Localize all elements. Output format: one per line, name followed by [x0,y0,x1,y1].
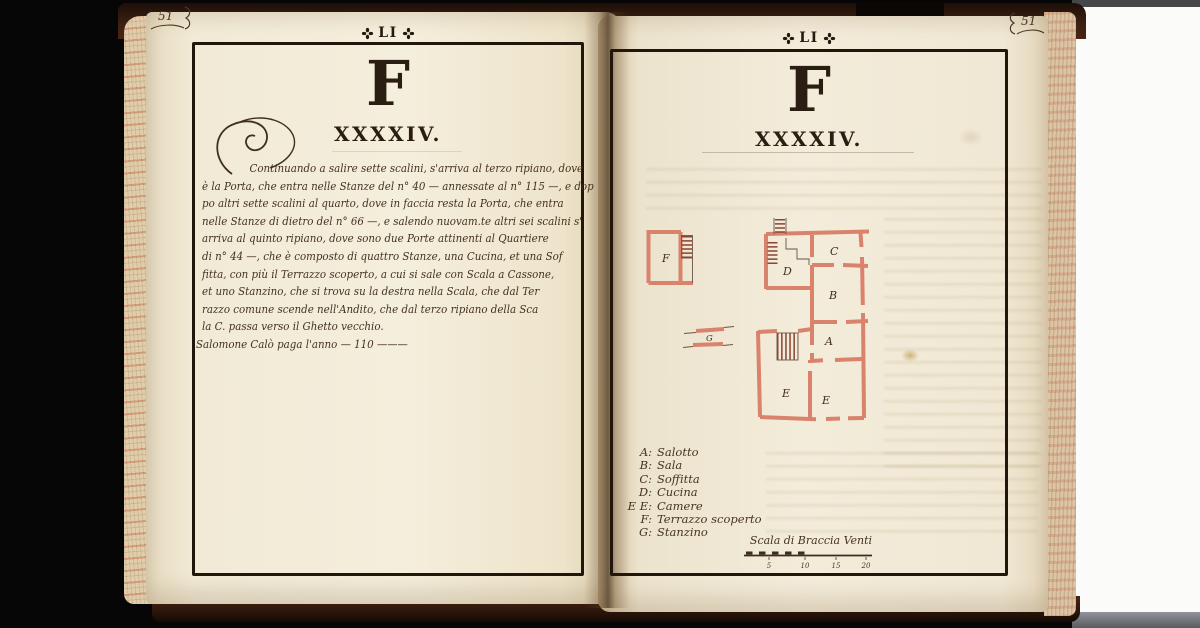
body-line: di n° 44 —, che è composto di quattro St… [202,248,567,266]
body-line: Continuando a salire sette scalini, s'ar… [202,160,567,178]
body-line: nelle Stanze di dietro del n° 66 —, e sa… [202,213,567,231]
legend-key: G: [626,526,652,539]
legend-key: B: [626,459,652,472]
running-head-text: LI [378,25,397,41]
folio-number-left: 51 [158,9,173,23]
fleuron-icon [824,33,835,44]
running-head-text: LI [799,30,818,46]
room-label-g: G [706,334,713,344]
body-line: è la Porta, che entra nelle Stanze del n… [202,178,567,196]
legend-key: A: [626,446,652,459]
legend-key: E E: [614,500,652,513]
body-line: arriva al quinto ripiano, dove sono due … [202,230,567,248]
legend-row: A:Salotto [626,446,856,459]
fleuron-icon [362,28,373,39]
scale-tick-15: 15 [832,562,841,570]
legend-name: Sala [657,459,682,472]
legend-key: F: [626,513,652,526]
room-label-c: C [830,245,839,258]
body-line: po altri sette scalini al quarto, dove i… [202,195,567,213]
room-label-d: D [782,265,792,278]
room-label-e1: E [781,387,790,400]
page-block-fore-edge [1044,12,1076,616]
legend-key: C: [626,473,652,486]
scale-tick-20: 20 [861,562,871,570]
room-label-b: B [828,289,837,302]
body-line: fitta, con più il Terrazzo scoperto, a c… [202,266,567,284]
chapter-letter-right: F [610,58,1008,122]
legend-name: Camere [657,500,703,513]
legend-name: Salotto [657,446,699,459]
faint-rule [702,152,914,153]
chapter-letter-left: F [192,52,584,116]
plan-legend: A:Salotto B:Sala C:Soffitta D:Cucina E E… [626,446,856,540]
folio-underline-icon [1016,29,1046,36]
scan-gray-strip-top [1072,0,1200,7]
scale-bar: 5 10 15 20 [742,549,876,573]
scan-white-margin [1072,0,1200,616]
payment-line: Salomone Calò paga l'anno — 110 ——— [196,336,567,354]
manuscript-paragraph: Continuando a salire sette scalini, s'ar… [202,160,586,354]
folio-number-right: 51 [1021,14,1036,28]
body-line: et uno Stanzino, che si trova su la dest… [202,283,567,301]
running-head-right: LI [610,30,1008,46]
legend-row: F:Terrazzo scoperto [626,513,856,526]
fleuron-icon [403,28,414,39]
legend-row: C:Soffitta [626,473,856,486]
legend-name: Soffitta [657,473,700,486]
legend-row: B:Sala [626,459,856,472]
scale-caption: Scala di Braccia Venti [736,534,886,547]
scale-tick-10: 10 [801,562,810,570]
folio-underline-icon [150,24,186,31]
faint-rule [332,151,462,152]
room-label-a: A [824,335,833,348]
legend-row: D:Cucina [626,486,856,499]
fleuron-icon [783,33,794,44]
legend-row: E E:Camere [626,500,856,513]
room-label-f: F [661,252,670,265]
room-label-e2: E [821,394,830,407]
chapter-numeral-right: XXXXIV. [610,127,1008,151]
manuscript-photo: 51 51 LI F XXXXIV. LI F XXXXIV. [0,0,1200,628]
legend-key: D: [626,486,652,499]
legend-name: Terrazzo scoperto [657,513,762,526]
scale-tick-5: 5 [767,562,772,570]
scan-gray-strip-bottom [1072,612,1200,628]
stair-hatch [687,219,798,347]
legend-name: Cucina [657,486,698,499]
legend-name: Stanzino [657,526,708,539]
body-line: razzo comune scende nell'Andito, che dal… [202,301,567,319]
floor-plan: F G D C B A E E [640,205,880,435]
body-line: la C. passa verso il Ghetto vecchio. [202,318,567,336]
running-head-left: LI [192,25,584,41]
